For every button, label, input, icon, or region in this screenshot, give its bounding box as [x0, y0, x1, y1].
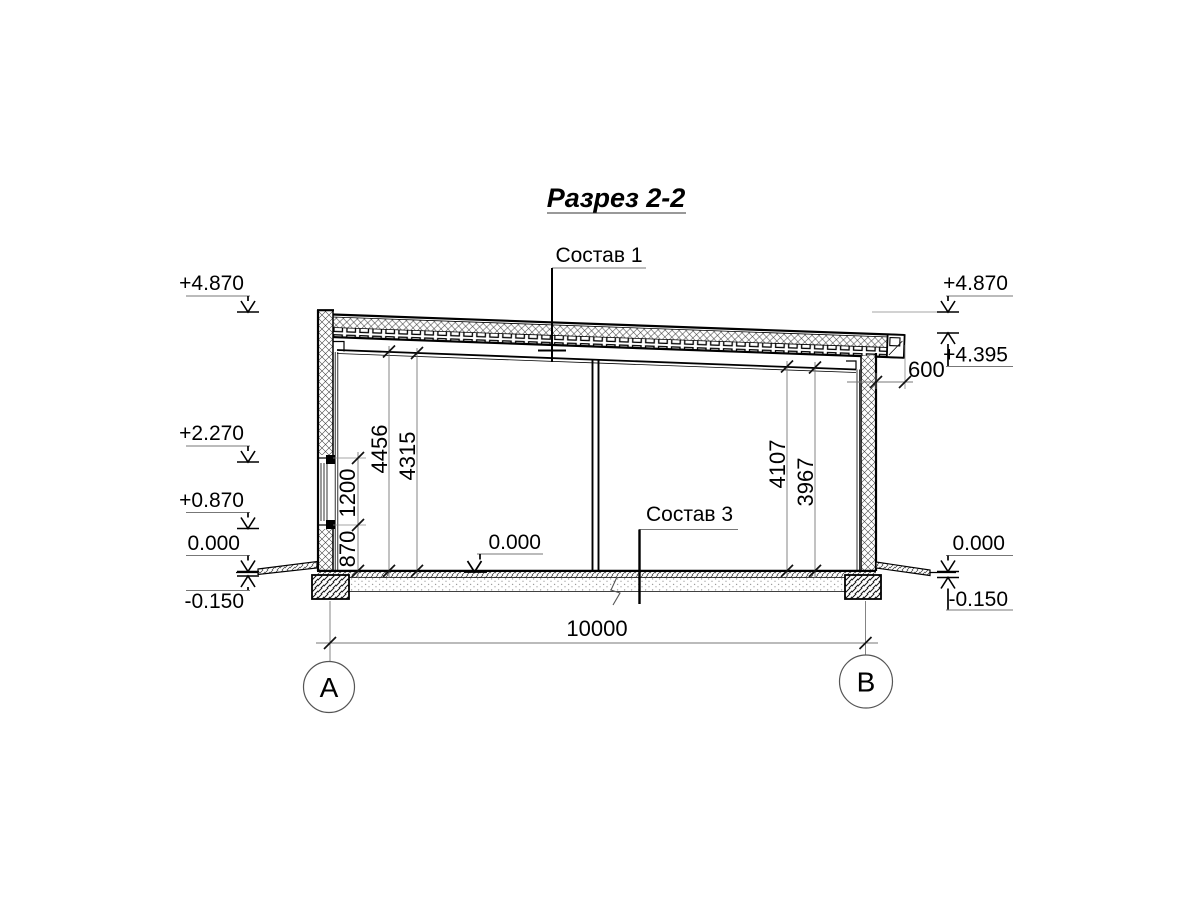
page-title: Разрез 2-2: [547, 183, 686, 213]
callout-floor-label: Состав 3: [646, 503, 733, 526]
elev-right-floor: 0.000: [937, 532, 1013, 572]
elev-left-window-sill: +0.870: [179, 489, 259, 529]
left-wall-hatch-upper: [318, 311, 333, 455]
drawing-sheet: Разрез 2-2: [0, 0, 1200, 900]
svg-text:+0.870: +0.870: [179, 489, 244, 512]
elev-left-window-head: +2.270: [179, 422, 259, 462]
title-block: Разрез 2-2: [547, 183, 686, 213]
window: [318, 455, 335, 529]
left-wall-hatch-lower: [318, 529, 333, 571]
svg-text:0.000: 0.000: [488, 531, 541, 554]
elev-right-top: +4.870: [872, 272, 1013, 312]
dim-height-left-inner: 4315: [395, 432, 420, 481]
svg-text:0.000: 0.000: [187, 532, 240, 555]
floor-slab: [317, 571, 876, 605]
foundation-left: [312, 575, 349, 599]
axis-bubble-a: А: [304, 662, 355, 713]
dim-sill-height: 870: [335, 531, 360, 568]
roof-edge-cap: [887, 334, 905, 357]
dim-height-left-outer: 4456: [367, 425, 392, 474]
elevation-marks-left: +4.870 +2.270 +0.870 0.000 -0.1: [179, 272, 259, 613]
dim-overhang-label: 600: [908, 357, 945, 382]
dim-span: 10000: [316, 601, 878, 661]
dim-left-chain: 870 1200: [333, 452, 366, 578]
dim-height-right-inner: 3967: [793, 458, 818, 507]
elev-left-base: -0.150: [184, 576, 259, 613]
foundation-right: [845, 575, 881, 599]
svg-text:0.000: 0.000: [952, 532, 1005, 555]
axis-bubble-b: В: [840, 655, 893, 708]
right-wall-hatch: [861, 356, 876, 571]
svg-text:+2.270: +2.270: [179, 422, 244, 445]
floor-screed-hatch: [317, 572, 876, 578]
elevation-marks-right: +4.870 +4.395 0.000 -0.150: [872, 272, 1013, 611]
dim-right-heights: 4107 3967: [765, 361, 821, 579]
svg-text:+4.870: +4.870: [179, 272, 244, 295]
dim-height-right-outer: 4107: [765, 440, 790, 489]
axes: А В: [304, 655, 893, 713]
dim-left-heights: 4456 4315: [367, 346, 423, 579]
elevation-mark-floor-mid: 0.000: [464, 531, 543, 572]
apron-right: [876, 562, 930, 576]
svg-text:-0.150: -0.150: [184, 590, 244, 613]
floor-concrete-dots: [317, 578, 876, 592]
svg-text:+4.395: +4.395: [943, 344, 1008, 367]
center-column: [593, 360, 599, 572]
svg-text:+4.870: +4.870: [943, 272, 1008, 295]
window-head-block: [326, 455, 335, 464]
elev-right-roof-edge: +4.395: [937, 333, 1013, 367]
elev-left-top: +4.870: [179, 272, 259, 312]
dim-window-height: 1200: [335, 469, 360, 518]
apron-left: [258, 562, 317, 575]
elev-left-floor: 0.000: [186, 532, 259, 572]
callout-roof-label: Состав 1: [555, 244, 642, 267]
dim-span-label: 10000: [566, 616, 627, 641]
section-drawing: Разрез 2-2: [0, 0, 1200, 900]
window-sill-block: [326, 520, 335, 529]
axis-a-label: А: [320, 672, 339, 703]
axis-b-label: В: [857, 667, 876, 698]
svg-text:-0.150: -0.150: [948, 588, 1008, 611]
elev-right-base: -0.150: [937, 578, 1013, 612]
